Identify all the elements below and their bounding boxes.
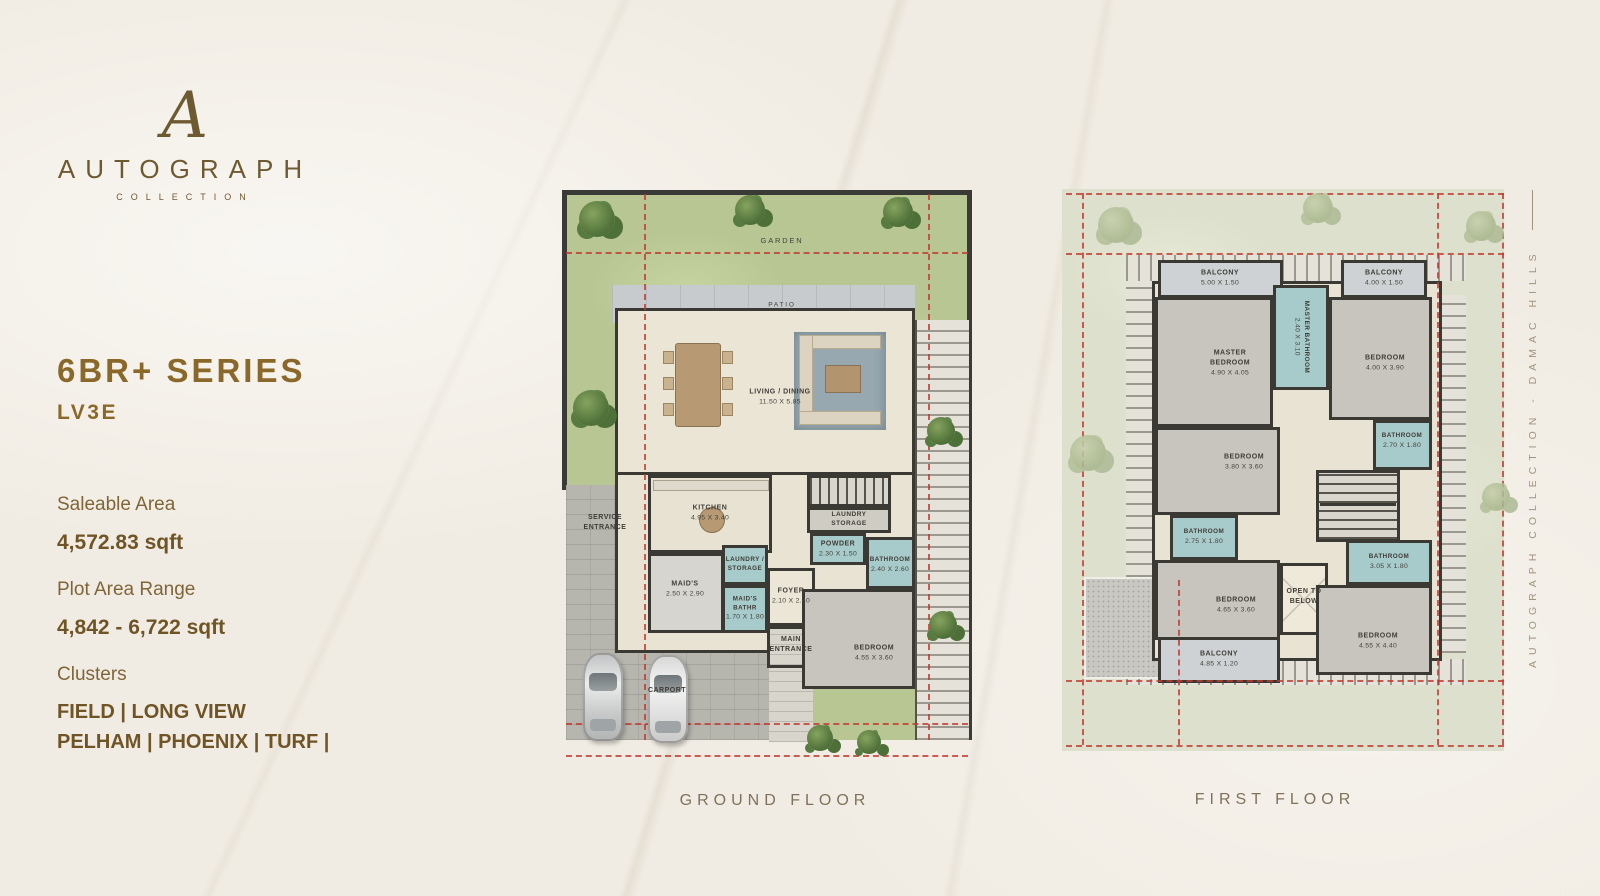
first-floor-plan: BALCONY5.00 X 1.50 BALCONY4.00 X 1.50 MA… xyxy=(1058,185,1508,755)
room-label: SERVICE ENTRANCE xyxy=(576,513,634,533)
room-label: MASTER BEDROOM4.90 X 4.05 xyxy=(1200,348,1260,377)
room-label: BALCONY4.85 X 1.20 xyxy=(1200,649,1238,668)
plot-boundary-line xyxy=(566,252,968,254)
room-label: BEDROOM4.55 X 3.60 xyxy=(854,643,894,662)
plot-boundary-line xyxy=(566,755,968,757)
side-text-rule xyxy=(1532,190,1533,230)
room-label: MAIN ENTRANCE xyxy=(768,635,814,655)
plot-boundary-line xyxy=(1502,193,1504,745)
plot-area-value: 4,842 - 6,722 sqft xyxy=(57,616,225,640)
coffee-table-icon xyxy=(825,365,861,393)
room-label: LIVING / DINING11.50 X 5.85 xyxy=(749,387,810,406)
tree-icon xyxy=(807,725,833,751)
room-label: BALCONY4.00 X 1.50 xyxy=(1365,268,1403,287)
room-label: KITCHEN4.95 X 3.40 xyxy=(691,503,729,522)
boundary-wall xyxy=(562,190,972,195)
tree-icon xyxy=(1466,211,1496,241)
room-label: MAID'S2.50 X 2.90 xyxy=(666,579,704,598)
side-walkway xyxy=(1440,295,1466,653)
tree-icon xyxy=(1098,207,1134,243)
tree-icon xyxy=(579,201,615,237)
tree-icon xyxy=(573,390,609,426)
boundary-wall xyxy=(562,190,567,490)
room-label: GARDEN xyxy=(761,236,804,247)
ground-floor-title: GROUND FLOOR xyxy=(645,792,905,810)
chair-icon xyxy=(663,377,674,390)
sofa-icon xyxy=(799,411,881,425)
kitchen-counter-icon xyxy=(653,480,769,491)
room-label: BEDROOM4.55 X 4.40 xyxy=(1358,631,1398,650)
plot-boundary-line xyxy=(1178,580,1180,745)
tree-icon xyxy=(857,730,881,754)
side-vertical-text: AUTOGRAPH COLLECTION - DAMAC HILLS xyxy=(1527,228,1539,668)
room-label: OPEN TO BELOW xyxy=(1283,587,1325,607)
plot-boundary-line xyxy=(644,194,646,740)
room-label: BEDROOM3.80 X 3.60 xyxy=(1224,452,1264,471)
clusters-line2: PELHAM | PHOENIX | TURF | xyxy=(57,731,329,754)
series-title: 6BR+ SERIES xyxy=(57,352,306,390)
first-floor-title: FIRST FLOOR xyxy=(1145,791,1405,809)
room-bedroom-br xyxy=(1316,585,1432,675)
room-label: BATHROOM2.40 X 2.60 xyxy=(867,556,913,574)
dining-table-icon xyxy=(675,343,721,427)
tree-icon xyxy=(927,417,955,445)
room-label: FOYER2.10 X 2.40 xyxy=(772,586,810,605)
brand-tagline: COLLECTION xyxy=(40,192,330,202)
chair-icon xyxy=(663,403,674,416)
room-label: POWDER2.30 X 1.50 xyxy=(819,539,857,558)
stair-rail xyxy=(1320,503,1396,506)
saleable-area-value: 4,572.83 sqft xyxy=(57,531,183,555)
car-icon xyxy=(648,655,688,743)
side-walkway xyxy=(915,320,969,740)
brand-logo: A AUTOGRAPH COLLECTION xyxy=(40,84,330,202)
plot-boundary-line xyxy=(1066,745,1504,747)
plot-boundary-line xyxy=(1437,193,1439,745)
series-variant: LV3E xyxy=(57,401,118,425)
car-icon xyxy=(583,653,623,741)
brochure-page: A AUTOGRAPH COLLECTION 6BR+ SERIES LV3E … xyxy=(0,0,1600,896)
room-label: MAID'S BATHR1.70 X 1.80 xyxy=(723,596,767,623)
tree-icon xyxy=(735,195,765,225)
saleable-area-label: Saleable Area xyxy=(57,494,175,516)
chair-icon xyxy=(663,351,674,364)
tree-icon xyxy=(929,611,957,639)
room-label: PATIO xyxy=(768,300,796,309)
brand-name: AUTOGRAPH xyxy=(40,154,330,185)
room-label: BALCONY5.00 X 1.50 xyxy=(1201,268,1239,287)
ground-floor-plan: GARDEN PATIO LIVING / DINING11.50 X 5.85… xyxy=(557,185,977,760)
room-bedroom-gf xyxy=(802,589,915,689)
room-label: BEDROOM4.00 X 3.90 xyxy=(1365,353,1405,372)
chair-icon xyxy=(722,377,733,390)
clusters-label: Clusters xyxy=(57,664,127,686)
tree-icon xyxy=(883,197,913,227)
room-label: BATHROOM3.05 X 1.80 xyxy=(1359,553,1419,571)
tree-icon xyxy=(1070,435,1106,471)
room-label: BATHROOM2.70 X 1.80 xyxy=(1375,432,1429,450)
plot-area-label: Plot Area Range xyxy=(57,579,195,601)
clusters-line1: FIELD | LONG VIEW xyxy=(57,701,246,724)
chair-icon xyxy=(722,351,733,364)
plot-boundary-line xyxy=(566,723,968,725)
room-label: BATHROOM2.75 X 1.80 xyxy=(1174,528,1234,546)
chair-icon xyxy=(722,403,733,416)
tree-icon xyxy=(1303,193,1333,223)
room-label: MASTER BATHROOM2.40 X 3.10 xyxy=(1292,301,1310,373)
room-label: BEDROOM4.65 X 3.60 xyxy=(1216,595,1256,614)
plot-boundary-line xyxy=(928,194,930,740)
room-label: LAUNDRY / STORAGE xyxy=(723,556,767,574)
tree-icon xyxy=(1482,483,1510,511)
stairs xyxy=(807,475,891,507)
room-label: LAUNDRY STORAGE xyxy=(814,510,884,528)
brand-monogram-icon: A xyxy=(40,84,330,148)
room-label: CARPORT xyxy=(648,686,686,696)
stairs xyxy=(1316,470,1400,542)
